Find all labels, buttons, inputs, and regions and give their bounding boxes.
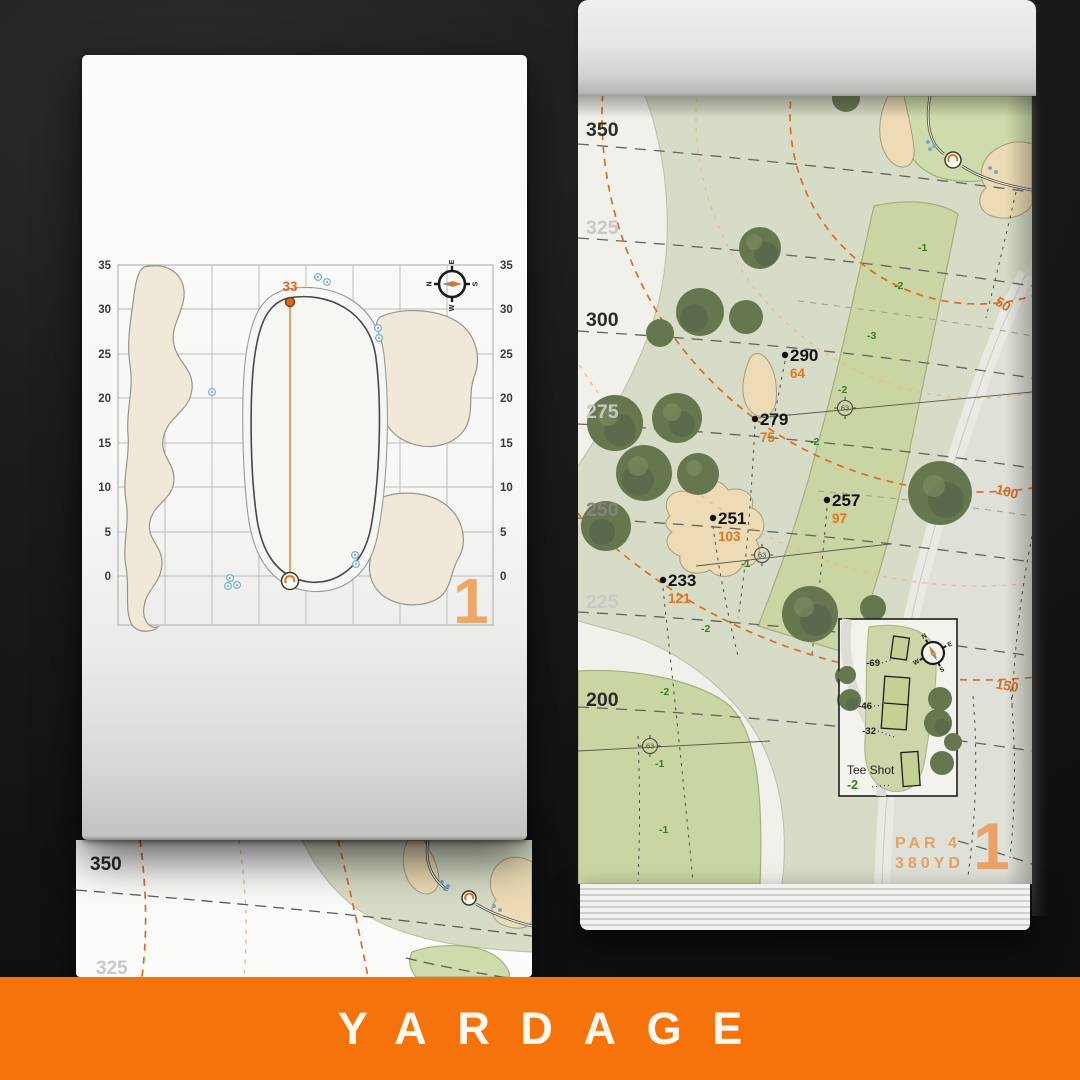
dist-290: 290 [790,346,818,365]
dist-279: 279 [760,410,788,429]
pin-position-dot [286,298,295,307]
elev-2: -3 [867,330,876,342]
tick-300: 300 [586,309,619,331]
dist-257: 257 [832,491,860,510]
dist-251: 251 [718,509,746,528]
tick-20-l: 20 [98,393,111,405]
elev-8: -1 [655,758,664,770]
elev-4: -2 [810,436,819,448]
sprinkler-63-label: 63 [841,404,849,413]
elev-9: -1 [659,824,668,836]
green-blob [410,946,510,977]
page-stack-edge [580,884,1030,930]
under-tick-350: 350 [90,854,122,875]
pin-marker [945,152,961,168]
hole-number: 1 [453,565,489,637]
tee-shot-inset: -69 -46 -32 Tee Shot -2 [838,619,963,796]
left-under-page: 350 325 [76,840,532,977]
compass-s: S [473,281,480,286]
elev-3: -2 [838,384,847,396]
elev-6: -2 [701,623,710,635]
elev-5: -1 [741,558,750,570]
pin-distance-label: 33 [282,279,298,294]
green-outline [243,287,388,591]
tick-15-r: 15 [500,438,513,450]
hole-map: 50 100 150 [578,96,1032,884]
tee-offset-69: -69 [866,658,880,669]
tee-shot-elevation: -2 [847,778,858,792]
elev-1: -2 [894,280,903,292]
remain-97: 97 [832,511,847,526]
tee-shot-title: Tee Shot [847,763,895,777]
under-page-map: 350 325 [76,840,532,977]
tick-30-l: 30 [98,304,111,316]
sprinkler-63-label: 63 [646,742,654,751]
tick-0-r: 0 [500,571,506,583]
hole-number: 1 [973,809,1010,883]
needle-head [452,281,462,287]
tee-offset-46: -46 [858,701,872,712]
yardage-label: 380YD [895,855,964,872]
tick-20-r: 20 [500,393,513,405]
right-booklet: 50 100 150 [578,0,1048,940]
remain-64: 64 [790,366,806,381]
dist-233: 233 [668,571,696,590]
tick-15-l: 15 [98,438,111,450]
pin-marker [462,891,476,905]
compass-rose: N E S W [427,259,480,311]
flipped-page-curl [578,0,1036,96]
compass-e: E [449,259,456,264]
y-axis-left: 35 30 25 20 15 10 5 0 [98,260,111,583]
green-detail-chart: 35 30 25 20 15 10 5 0 35 30 25 20 15 10 … [82,55,527,840]
tick-25-l: 25 [98,349,111,361]
left-main-page: 35 30 25 20 15 10 5 0 35 30 25 20 15 10 … [82,55,527,840]
tee-offset-32: -32 [862,726,876,737]
tick-35-r: 35 [500,260,513,272]
compass-w: W [449,304,456,311]
par-label: PAR 4 [895,835,961,852]
elev-7: -2 [660,686,669,698]
tick-225: 225 [586,591,619,613]
hole-map-page: 50 100 150 [578,96,1032,884]
yardage-banner: YARDAGE [0,977,1080,1080]
tick-350: 350 [586,119,619,141]
under-tick-325: 325 [96,958,128,977]
tick-30-r: 30 [500,304,513,316]
remain-121: 121 [668,591,691,606]
tick-10-r: 10 [500,482,513,494]
yardage-book-mockup: 350 325 35 30 25 20 [0,0,1080,1080]
tick-10-l: 10 [98,482,111,494]
elev-0: -1 [918,242,927,254]
tick-5-r: 5 [500,527,507,539]
tick-325: 325 [586,217,619,239]
tick-25-r: 25 [500,349,513,361]
banner-title: YARDAGE [307,1003,773,1055]
remain-75: 75 [760,430,776,445]
tick-5-l: 5 [105,527,112,539]
book-spine-edge [1032,4,1048,916]
sprinkler-63-label: 63 [758,551,766,560]
compass-n: N [427,281,434,286]
tick-275: 275 [586,401,619,423]
y-axis-right: 35 30 25 20 15 10 5 0 [500,260,513,583]
tick-35-l: 35 [98,260,111,272]
tick-250: 250 [586,499,619,521]
tick-0-l: 0 [105,571,111,583]
tick-200: 200 [586,689,619,711]
remain-103: 103 [718,529,741,544]
